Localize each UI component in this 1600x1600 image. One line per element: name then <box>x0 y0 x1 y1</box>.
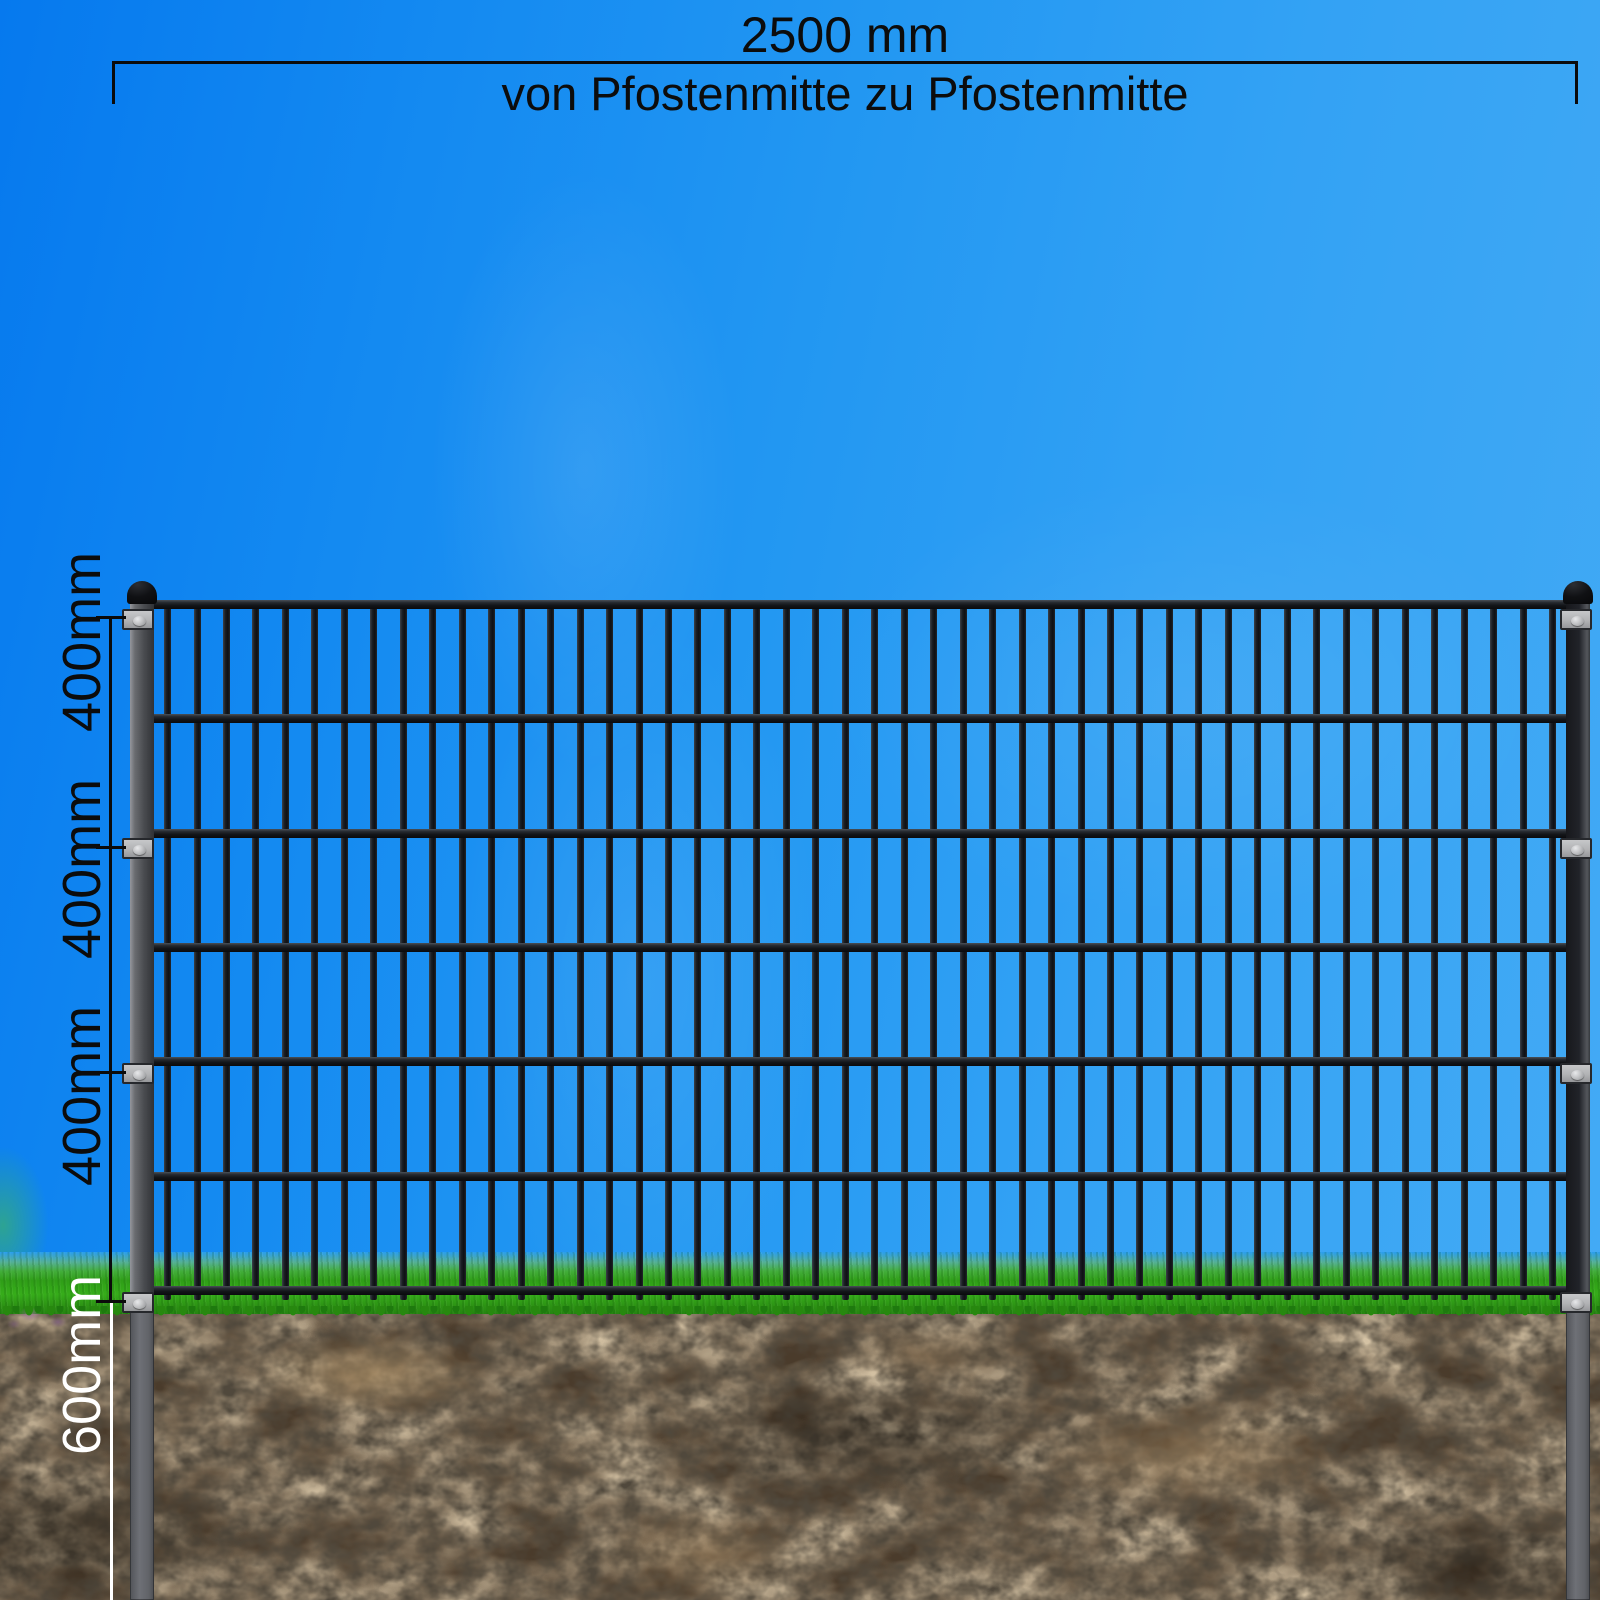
right-post <box>1566 596 1590 1312</box>
right-post-cap <box>1563 581 1593 604</box>
top-dimension-value: 2500 mm <box>741 10 949 60</box>
left-post-underground <box>130 1312 154 1600</box>
fence-diagram-scene: 2500 mm von Pfostenmitte zu Pfostenmitte… <box>0 0 1600 1600</box>
mounting-clamp-bracket <box>1560 1292 1592 1313</box>
fence-horizontal-rail <box>151 714 1569 723</box>
mounting-clamp-bracket <box>1560 838 1592 859</box>
grass-fringe <box>0 1306 1600 1328</box>
top-dimension-subtitle: von Pfostenmitte zu Pfostenmitte <box>501 70 1188 117</box>
fence-horizontal-rail <box>151 1057 1569 1066</box>
mounting-clamp-bracket <box>122 609 154 630</box>
fence-horizontal-rail <box>151 829 1569 838</box>
mounting-clamp-bracket <box>1560 609 1592 630</box>
mounting-clamp-bracket <box>1560 1063 1592 1084</box>
right-post-underground <box>1566 1312 1590 1600</box>
mounting-clamp-bracket <box>122 1292 154 1313</box>
fence-horizontal-rail <box>151 1286 1569 1295</box>
soil-color-patches <box>0 1314 1600 1600</box>
mounting-clamp-bracket <box>122 1063 154 1084</box>
mounting-clamp-bracket <box>122 838 154 859</box>
fence-horizontal-rail <box>151 600 1569 609</box>
left-post <box>130 596 154 1312</box>
fence-horizontal-rail <box>151 1172 1569 1181</box>
fence-horizontal-rail <box>151 943 1569 952</box>
left-post-cap <box>127 581 157 604</box>
